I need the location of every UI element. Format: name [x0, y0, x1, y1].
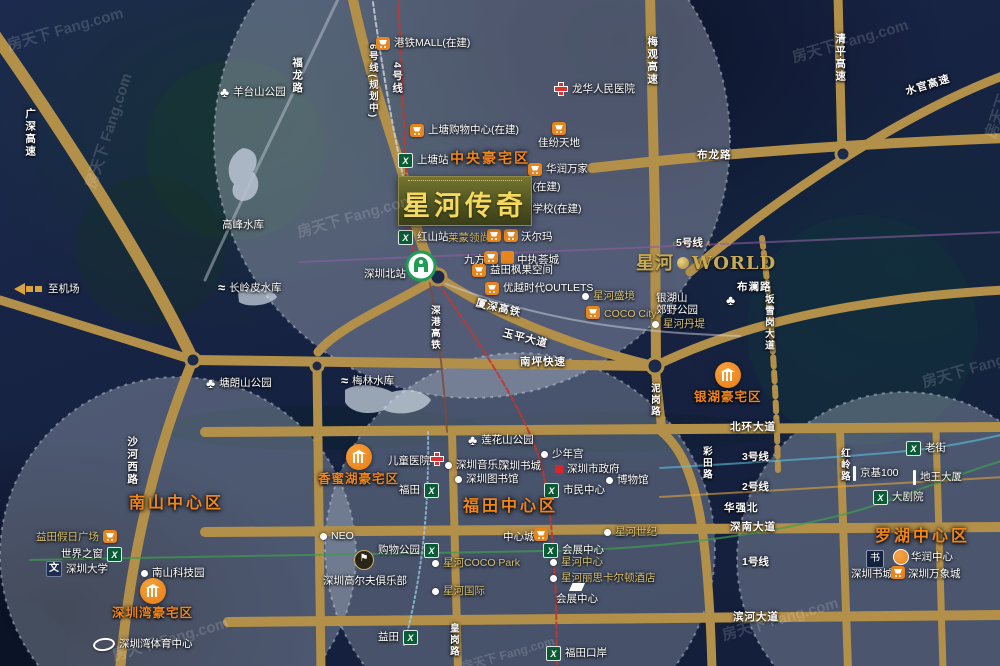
metro-station-icon: X	[873, 490, 888, 505]
label-text: 塘朗山公园	[219, 377, 272, 389]
label-text: 深南大道	[730, 521, 776, 533]
road-label: 梅观高速	[646, 36, 658, 86]
mall-poi: 华润万家	[528, 163, 588, 176]
poi-dot-icon	[320, 533, 327, 540]
label-text: 益田枫果空间	[490, 264, 553, 276]
reservoir-poi: ≈梅林水库	[341, 375, 394, 387]
label-text: 深圳图书馆	[466, 473, 519, 485]
poi-label: 深圳书城	[851, 568, 893, 580]
galaxy-project-poi: 星河国际	[432, 585, 485, 597]
shopping-cart-icon	[485, 282, 499, 295]
label-text: 南山中心区	[129, 495, 224, 513]
shopping-cart-icon	[472, 264, 486, 277]
poi-dot-icon	[432, 560, 439, 567]
shopping-cart-icon	[410, 124, 424, 137]
map-canvas: 星河传奇 GALAXY 星河WORLD 房天下 Fang.com 房天下 Fan…	[0, 0, 1000, 666]
road-label: 布龙路	[697, 149, 732, 161]
label-text: 港铁MALL(在建)	[394, 37, 470, 49]
metro-line-label: 2号线	[742, 481, 769, 493]
label-text: 广深高速	[24, 108, 36, 158]
label-text: 华润万家	[546, 163, 588, 175]
road-label: 深南大道	[730, 521, 776, 533]
label-text: 深港高铁	[428, 305, 439, 351]
district-label: 南山中心区	[129, 495, 224, 513]
label-text: 清平高速	[834, 33, 846, 83]
estate-building-icon	[346, 444, 372, 470]
poi-label: 博物馆	[606, 474, 649, 486]
poi-label: 深圳北站	[364, 268, 406, 280]
hospital-cross-icon	[430, 452, 444, 466]
school-poi: 文深圳大学	[46, 561, 108, 577]
poi-label: 深圳图书馆	[455, 473, 519, 485]
railway-station-icon	[405, 250, 437, 282]
galaxy-project-poi: 星河盛境	[582, 290, 635, 302]
label-text: 星河世纪	[615, 526, 657, 538]
mall-poi: 益田枫果空间	[472, 264, 553, 277]
label-text: 益田	[378, 631, 399, 643]
stadium-poi: 深圳湾体育中心	[93, 638, 193, 651]
label-text: 购物公园	[378, 544, 420, 556]
metro-station-icon: X	[546, 646, 561, 661]
convention-center-poi: 会展中心	[556, 583, 598, 605]
label-text: 世界之窗	[61, 548, 103, 560]
road-label: 皇岗路	[447, 623, 458, 658]
poi-dot-icon	[606, 477, 613, 484]
mall-square-icon	[501, 251, 514, 264]
galaxy-world-subtitle: GALAXY	[636, 242, 776, 248]
metro-station-icon: X	[544, 483, 559, 498]
label-text: 长岭皮水库	[229, 282, 282, 294]
label-text: 沙河西路	[126, 436, 138, 486]
road-nanping-expwy	[193, 360, 655, 366]
shopping-cart-icon	[103, 530, 117, 543]
mall-poi: 港铁MALL(在建)	[376, 37, 470, 50]
label-text: 红岭路	[838, 448, 849, 483]
label-text: 2号线	[742, 481, 769, 493]
galaxy-world-label: GALAXY 星河WORLD	[636, 242, 776, 275]
label-text: 梅林水库	[352, 375, 394, 387]
label-text: 华强北	[724, 502, 759, 514]
road-label: 红岭路	[838, 448, 849, 483]
landmark-tower-poi: 京基100	[853, 466, 899, 481]
label-text: 6号线(规划中)	[366, 44, 377, 119]
galaxy-world-title: 星河WORLD	[636, 249, 776, 275]
metro-station: X上塘站	[398, 153, 449, 168]
label-text: 沃尔玛	[521, 231, 553, 243]
bookstore-icon: 书	[866, 550, 884, 568]
label-text: 1号线	[742, 556, 769, 568]
label-text: NEO	[331, 530, 354, 542]
label-text: 香蜜湖豪宅区	[318, 472, 399, 486]
poi-dot-icon	[550, 559, 557, 566]
golf-club-icon: ⚑	[354, 550, 374, 570]
metro-station: X老街	[906, 441, 946, 456]
poi-label: COCO City	[604, 308, 657, 320]
park-tree-icon: ♣	[220, 86, 229, 99]
metro-station-icon: X	[398, 230, 413, 245]
metro-station-icon: X	[398, 153, 413, 168]
shopping-cart-icon	[586, 306, 600, 319]
poi-dot-icon	[582, 293, 589, 300]
road-label: 布澜路	[737, 281, 772, 293]
metro-station: X大剧院	[873, 490, 924, 505]
metro-station-icon: X	[424, 543, 439, 558]
poi-dot-icon	[455, 476, 462, 483]
label-text: 中央豪宅区	[450, 150, 530, 166]
label-text: 深圳高尔夫俱乐部	[323, 575, 407, 587]
poi-label: 深圳书城	[499, 460, 541, 472]
road-label: 滨河大道	[733, 611, 779, 623]
label-text: 佳纷天地	[538, 137, 580, 149]
poi-label: 华润中心	[911, 551, 953, 563]
galaxy-project-poi: 星河中心	[550, 556, 603, 568]
road-label: 华强北	[724, 502, 759, 514]
shopping-cart-icon	[891, 566, 905, 579]
label-text: 莱蒙领尚	[448, 232, 490, 244]
label-text: COCO City	[604, 308, 657, 320]
metro-line-label: 1号线	[742, 556, 769, 568]
road-label: 彩田路	[700, 446, 711, 481]
globe-icon	[677, 257, 689, 269]
label-text: 梅观高速	[646, 36, 658, 86]
road-label: 北环大道	[730, 421, 776, 433]
shopping-cart-icon	[376, 37, 390, 50]
shopping-cart-icon	[504, 229, 518, 242]
shopping-cart-icon	[504, 229, 518, 242]
metro-station-icon: X	[107, 547, 122, 562]
shopping-cart-icon	[484, 251, 498, 264]
mixc-circle-icon	[893, 549, 909, 565]
metro-station-icon: X	[424, 483, 439, 498]
galaxy-project-poi: 星河丹堤	[652, 318, 705, 330]
mixc-circle-icon	[893, 549, 909, 565]
label-text: 福田口岸	[565, 647, 607, 659]
label-text: 福田	[399, 484, 420, 496]
label-text: 深圳北站	[364, 268, 406, 280]
reservoir-wave-icon: ≈	[218, 283, 225, 293]
mall-poi: 优越时代OUTLETS	[485, 282, 593, 295]
park-poi: ♣塘朗山公园	[206, 377, 272, 390]
reservoir-poi: ≈长岭皮水库	[218, 282, 282, 294]
hospital-cross-icon	[430, 452, 444, 466]
label-text: 市民中心	[563, 484, 605, 496]
poi-label: 益田假日广场	[36, 531, 99, 543]
logo-title: 星河传奇	[403, 184, 527, 223]
label-text: 深圳湾体育中心	[119, 638, 193, 650]
label-text: 银湖山 郊野公园	[656, 292, 698, 316]
park-tree-icon: ♣	[726, 294, 735, 307]
galaxy-project-poi: 星河世纪	[604, 526, 657, 538]
metro-station: X福田口岸	[546, 646, 607, 661]
hospital-cross-icon	[554, 82, 568, 96]
park-tree-icon: ♣	[468, 434, 477, 447]
park-tree-icon: ♣	[726, 294, 735, 307]
label-text: 深圳湾豪宅区	[112, 606, 193, 620]
shopping-cart-icon	[534, 528, 548, 541]
district-label: 福田中心区	[463, 498, 558, 516]
label-text: 星河盛境	[593, 290, 635, 302]
label-text: 泥岗路	[648, 383, 659, 418]
poi-dot-icon	[432, 588, 439, 595]
label-text: 益田假日广场	[36, 531, 99, 543]
poi-label: 沃尔玛	[521, 231, 553, 243]
tower-bar-icon	[913, 470, 916, 485]
shopping-cart-icon	[487, 229, 501, 242]
poi-label: 高峰水库	[222, 219, 264, 231]
label-text: 福龙路	[291, 57, 303, 95]
label-text: 深圳万象城	[908, 568, 961, 580]
label-text: 星河丹堤	[663, 318, 705, 330]
label-text: 星河COCO Park	[443, 557, 520, 569]
estate-building-icon	[715, 362, 741, 388]
estate-district-label: 银湖豪宅区	[694, 362, 762, 404]
tower-bar-icon	[853, 466, 856, 481]
metro-station: 世界之窗X	[61, 547, 122, 562]
shopping-cart-icon	[103, 530, 117, 543]
landmark-tower-poi: 地王大厦	[913, 470, 962, 485]
estate-district-label: 香蜜湖豪宅区	[318, 444, 399, 486]
mall-poi: 上塘购物中心(在建)	[410, 124, 519, 137]
label-text: 红山站	[417, 231, 449, 243]
label-text: 北环大道	[730, 421, 776, 433]
metro-line-label: 3号线	[742, 451, 769, 463]
label-text: 会展中心	[562, 544, 604, 556]
road-label: 广深高速	[24, 108, 36, 158]
label-text: 福田中心区	[463, 498, 558, 516]
label-text: 中心城	[503, 531, 535, 543]
road-label: 沙河西路	[126, 436, 138, 486]
mall-poi: 佳纷天地	[538, 122, 580, 149]
shopping-cart-icon	[487, 229, 501, 242]
school-icon: 文	[46, 561, 62, 577]
road-label: 福龙路	[291, 57, 303, 95]
shopping-cart-icon	[552, 122, 566, 135]
golf-flag-icon: ⚑	[354, 550, 374, 570]
label-text: 星河国际	[443, 585, 485, 597]
label-text: 华润中心	[911, 551, 953, 563]
metro-station-icon: X	[906, 441, 921, 456]
label-text: 优越时代OUTLETS	[503, 282, 593, 294]
airport-direction-label: 至机场	[14, 283, 80, 295]
label-text: 深圳书城	[851, 568, 893, 580]
poi-label: 深圳万象城	[908, 568, 961, 580]
label-text: 大剧院	[892, 491, 924, 503]
label-text: 高峰水库	[222, 219, 264, 231]
mall-square-icon	[501, 251, 514, 264]
label-text: 南坪快速	[520, 356, 566, 368]
label-text: 少年宫	[552, 448, 584, 460]
label-text: 博物馆	[617, 474, 649, 486]
label-text: 莲花山公园	[481, 434, 534, 446]
metro-station: X市民中心	[544, 483, 605, 498]
expo-building-icon	[569, 583, 585, 591]
star-river-legend-logo: 星河传奇	[398, 176, 532, 226]
galaxy-project-poi: 星河COCO Park	[432, 557, 520, 569]
label-text: 上塘站	[417, 154, 449, 166]
metro-station-icon: X	[403, 630, 418, 645]
label-text: 会展中心	[556, 593, 598, 605]
shopping-cart-icon	[484, 251, 498, 264]
road-label: 南坪快速	[520, 356, 566, 368]
park-poi: ♣莲花山公园	[468, 434, 534, 447]
label-text: 上塘购物中心(在建)	[428, 124, 519, 136]
poi-label: NEO	[320, 530, 354, 542]
hospital-poi: 龙华人民医院	[554, 82, 635, 96]
shopping-cart-icon	[528, 163, 542, 176]
airport-arrow-icon	[14, 283, 44, 295]
label-text: 3号线	[742, 451, 769, 463]
road-label: 4号线	[391, 62, 403, 95]
label-text: 深圳书城	[499, 460, 541, 472]
poi-label: 深圳高尔夫俱乐部	[323, 575, 407, 587]
park-poi: 银湖山 郊野公园	[656, 292, 698, 316]
label-text: 4号线	[391, 62, 403, 95]
poi-label: 中心城	[503, 531, 535, 543]
label-text: 皇岗路	[447, 623, 458, 658]
estate-building-icon	[140, 578, 166, 604]
road-beihuan	[205, 427, 1000, 432]
railway-station-icon	[405, 250, 437, 282]
road-label: 深港高铁	[428, 305, 439, 351]
poi-dot-icon	[652, 321, 659, 328]
shopping-cart-icon	[534, 528, 548, 541]
district-label: 中央豪宅区	[450, 150, 530, 166]
label-text: 至机场	[48, 283, 80, 295]
metro-station: X红山站	[398, 230, 449, 245]
label-text: 羊台山公园	[233, 86, 286, 98]
poi-dot-icon	[550, 575, 557, 582]
road-label: 泥岗路	[648, 383, 659, 418]
label-text: 罗湖中心区	[875, 528, 970, 546]
label-text: 地王大厦	[920, 471, 962, 483]
shopping-cart-icon	[891, 566, 905, 579]
road-label: 清平高速	[834, 33, 846, 83]
shopping-cart-icon	[586, 306, 600, 319]
metro-station: 益田X	[378, 630, 418, 645]
label-text: 深圳大学	[66, 563, 108, 575]
poi-dot-icon	[445, 462, 452, 469]
poi-dot-icon	[141, 570, 148, 577]
label-text: 彩田路	[700, 446, 711, 481]
label-text: 滨河大道	[733, 611, 779, 623]
poi-label: 莱蒙领尚	[448, 232, 490, 244]
park-tree-icon: ♣	[206, 377, 215, 390]
poi-dot-icon	[604, 529, 611, 536]
park-poi: ♣羊台山公园	[220, 86, 286, 99]
label-text: 布澜路	[737, 281, 772, 293]
reservoir-wave-icon: ≈	[341, 376, 348, 386]
label-text: 京基100	[860, 467, 899, 479]
label-text: 星河中心	[561, 556, 603, 568]
poi-label: 少年宫	[541, 448, 584, 460]
label-text: 老街	[925, 442, 946, 454]
estate-district-label: 深圳湾豪宅区	[112, 578, 193, 620]
label-text: 龙华人民医院	[572, 83, 635, 95]
metro-station: 福田X	[399, 483, 439, 498]
stadium-icon	[92, 637, 116, 653]
bookstore-icon: 书	[866, 550, 884, 568]
government-icon	[555, 465, 563, 473]
label-text: 坂雪岗大道	[762, 294, 773, 352]
metro-station: 购物公园X	[378, 543, 439, 558]
road-binhe	[228, 615, 1000, 622]
road-label: 6号线(规划中)	[366, 44, 377, 119]
district-label: 罗湖中心区	[875, 528, 970, 546]
label-text: 银湖豪宅区	[694, 390, 762, 404]
label-text: 布龙路	[697, 149, 732, 161]
poi-dot-icon	[541, 451, 548, 458]
logo-decoration	[408, 180, 522, 181]
road-label: 坂雪岗大道	[762, 294, 773, 352]
